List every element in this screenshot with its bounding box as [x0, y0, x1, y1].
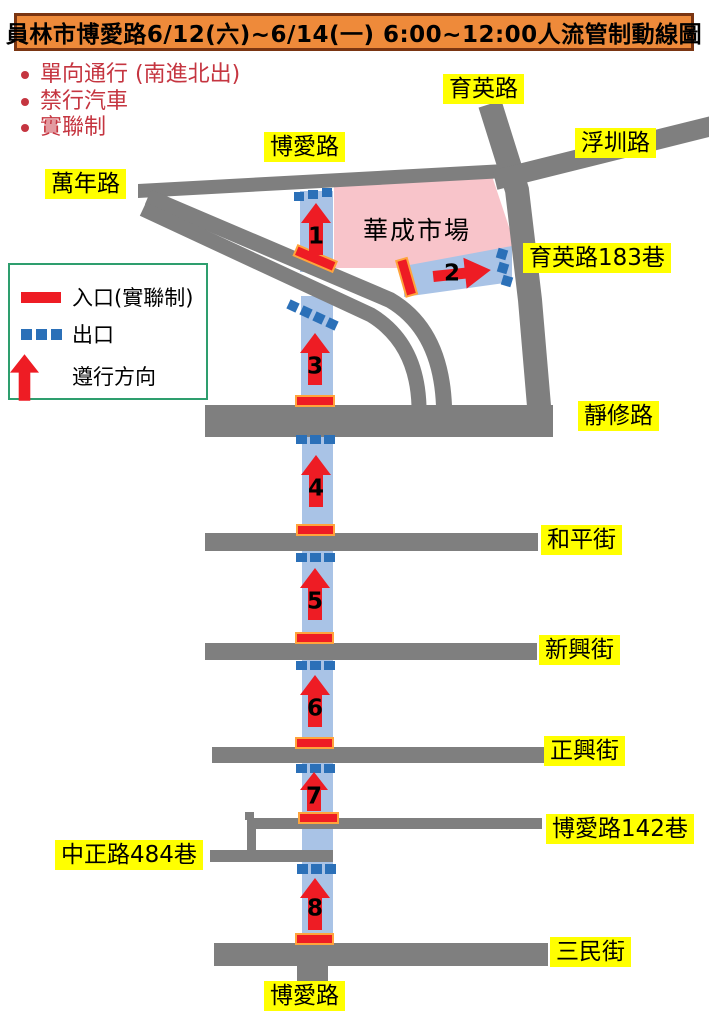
street-label-zhongzheng484: 中正路484巷	[55, 840, 203, 870]
street-label-boai-bottom: 博愛路	[264, 981, 345, 1011]
entrance-bar-6	[296, 738, 333, 748]
road-heping	[205, 533, 538, 551]
entrance-bar-5	[296, 633, 333, 643]
street-label-boai142: 博愛路142巷	[546, 814, 694, 844]
entrance-bar-3	[296, 396, 334, 406]
segment-number-3: 3	[307, 356, 323, 379]
legend-direction-label: 遵行方向	[72, 361, 156, 391]
exit-dots-7	[296, 764, 335, 773]
segment-number-1: 1	[308, 226, 324, 249]
street-label-zhengxing: 正興街	[544, 736, 625, 766]
bullet-icon	[21, 124, 29, 132]
road-sanmin	[214, 943, 548, 966]
segment-number-6: 6	[307, 698, 323, 721]
legend-exit-label: 出口	[72, 319, 114, 349]
road-xinxing	[205, 643, 537, 660]
entrance-bar-7	[299, 813, 338, 823]
street-label-sanmin: 三民街	[550, 937, 631, 967]
legend-direction-row: 遵行方向	[10, 354, 206, 398]
exit-dots-8	[297, 864, 336, 874]
road-boai142	[248, 818, 542, 829]
exit-dots-4	[296, 435, 335, 444]
segment-number-4: 4	[308, 478, 324, 501]
note-no-cars: 禁行汽車	[40, 89, 128, 115]
street-label-wannian: 萬年路	[45, 169, 126, 199]
entrance-bar-8	[296, 934, 333, 944]
entrance-bar-icon	[10, 292, 72, 303]
entrance-bar-4	[297, 525, 334, 535]
street-label-heping: 和平街	[541, 525, 622, 555]
segment-number-7: 7	[306, 786, 322, 809]
segment-number-2: 2	[444, 263, 460, 286]
street-label-jingxiu: 靜修路	[578, 401, 659, 431]
road-zhongzheng484	[210, 850, 333, 862]
market-label: 華成市場	[363, 211, 471, 247]
exit-dots-6	[296, 661, 335, 670]
note-registration: 實聯制	[40, 115, 106, 141]
exit-dots-icon	[10, 329, 72, 340]
street-label-yuying: 育英路	[443, 74, 524, 104]
segment-number-5: 5	[307, 591, 323, 614]
bullet-icon	[21, 71, 29, 79]
segment-number-8: 8	[307, 898, 323, 921]
legend-entrance-row: 入口(實聯制)	[10, 280, 206, 314]
note-one-way: 單向通行 (南進北出)	[40, 62, 240, 88]
road-zhengxing	[212, 747, 545, 763]
legend-entrance-label: 入口(實聯制)	[72, 282, 193, 312]
traffic-control-map: 員林市博愛路6/12(六)~6/14(一) 6:00~12:00人流管制動線圖 …	[0, 0, 709, 1024]
street-label-boai-top: 博愛路	[264, 132, 345, 162]
street-label-xinxing: 新興街	[539, 635, 620, 665]
street-label-yuying183: 育英路183巷	[523, 243, 671, 273]
legend-exit-row: 出口	[10, 317, 206, 351]
exit-dots-5	[296, 553, 335, 562]
street-label-fuzhen: 浮圳路	[575, 128, 656, 158]
bullet-icon	[21, 98, 29, 106]
road-jingxiu	[205, 405, 553, 437]
legend-box: 入口(實聯制) 出口 遵行方向	[8, 263, 208, 400]
page-title: 員林市博愛路6/12(六)~6/14(一) 6:00~12:00人流管制動線圖	[14, 13, 694, 51]
